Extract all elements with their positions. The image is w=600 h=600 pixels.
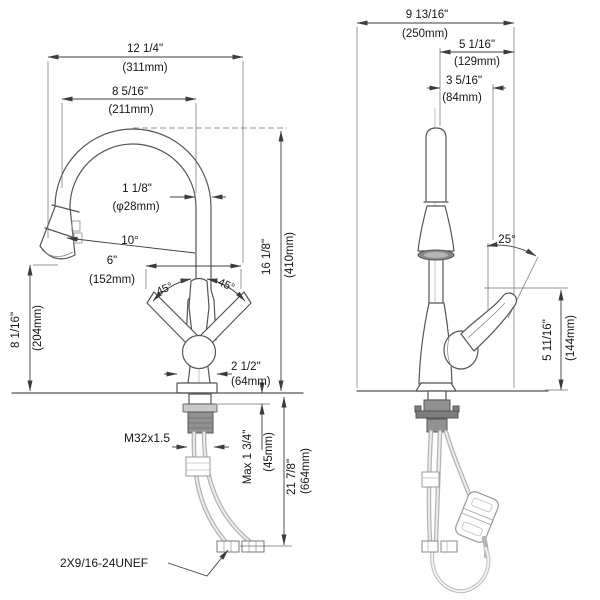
mounting-bracket [416, 411, 458, 418]
threaded-shank [188, 412, 213, 433]
supply-fitting-side [422, 541, 438, 552]
aerator-face [424, 252, 448, 258]
spray-head-side [418, 206, 454, 251]
dim-spout-height-in: 16 1/8" [261, 239, 273, 275]
front-faucet-outline [40, 129, 251, 393]
hose-clip-side [422, 472, 439, 487]
dim-handle-height-mm: (144mm) [565, 315, 577, 361]
dim-hose-length-in: 21 7/8" [286, 459, 298, 495]
valve-body [183, 336, 216, 369]
front-view: 12 1/4" (311mm) 8 5/16" (211mm) 1 1/8" (… [10, 43, 312, 576]
dim-spout-reach-in: 8 5/16" [112, 86, 148, 98]
dim-outlet-clearance-in: 8 1/16" [10, 312, 22, 348]
dim-handle-swing-left: 45° [155, 280, 175, 298]
dim-upper-depth-mm: (129mm) [454, 56, 500, 68]
dim-spout-height-mm: (410mm) [284, 232, 296, 278]
supply-fitting [242, 541, 264, 552]
dim-max-deck-in: Max 1 3/4" [242, 430, 254, 485]
dim-overall-depth-mm: (250mm) [402, 28, 448, 40]
dim-base-diameter-in: 2 1/2" [231, 361, 261, 373]
base-flange [177, 383, 217, 393]
side-underdeck [415, 391, 500, 591]
dim-outlet-clearance-mm: (204mm) [32, 305, 44, 351]
handle-lever-side [461, 293, 516, 351]
hose-weight [454, 490, 501, 545]
dim-spout-offset-mm: (84mm) [442, 92, 482, 104]
dim-handle-swing-right: 45° [216, 276, 236, 294]
shank-side [424, 400, 450, 411]
dim-spout-diameter-in: 1 1/8" [122, 183, 152, 195]
mounting-washer [183, 404, 217, 412]
dim-outlet-spread-mm: (152mm) [89, 274, 135, 286]
supply-fitting-side [441, 541, 457, 552]
hose-loop [432, 547, 488, 591]
dim-upper-depth-in: 5 1/16" [459, 39, 495, 51]
dim-max-deck-mm: (45mm) [263, 432, 275, 472]
dim-hose-length-mm: (664mm) [300, 448, 312, 494]
side-view: 9 13/16" (250mm) 5 1/16" (129mm) 3 5/16"… [357, 9, 577, 591]
dim-spray-angle: 10° [121, 235, 138, 247]
dim-overall-width-in: 12 1/4" [127, 43, 163, 55]
escutcheon [416, 383, 456, 391]
hose-clip [186, 457, 210, 476]
dim-spout-reach-mm: (211mm) [108, 104, 153, 116]
shank-thread-label: M32x1.5 [124, 431, 170, 445]
dim-handle-angle: 25° [498, 234, 515, 246]
dim-overall-depth-in: 9 13/16" [406, 9, 448, 21]
dim-spout-offset-in: 3 5/16" [446, 75, 482, 87]
side-faucet-outline [418, 128, 516, 384]
dim-handle-height-in: 5 11/16" [542, 319, 554, 361]
supply-connection-label: 2X9/16-24UNEF [60, 556, 148, 570]
dim-outlet-spread-in: 6" [107, 255, 117, 267]
dim-base-diameter-mm: (64mm) [231, 376, 271, 388]
faucet-dimension-drawing: 12 1/4" (311mm) 8 5/16" (211mm) 1 1/8" (… [0, 0, 600, 600]
spray-button [72, 221, 80, 231]
dim-spout-diameter-mm: (φ28mm) [112, 201, 159, 213]
dim-overall-width-mm: (311mm) [122, 62, 167, 74]
